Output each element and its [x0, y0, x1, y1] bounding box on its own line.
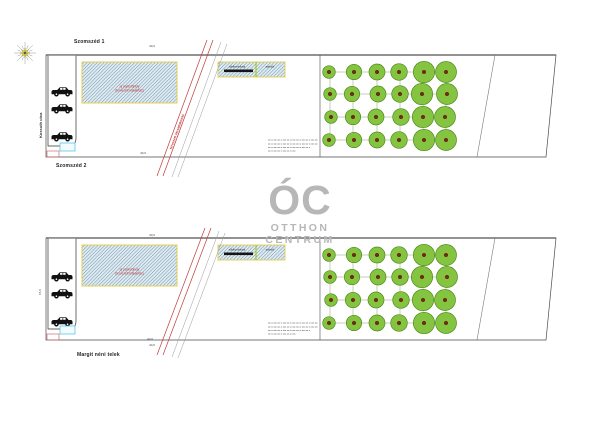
- hatched-strip-black-bar: [224, 253, 253, 256]
- dimension-label: 40,0: [149, 343, 155, 347]
- compass-spoke: [22, 57, 24, 61]
- legend-cyan-box: [60, 326, 75, 334]
- hatched-strip-label-right: parkoló: [266, 248, 275, 252]
- tree-trunk-dot: [374, 115, 378, 119]
- compass-spoke: [27, 57, 29, 61]
- tree-trunk-dot: [327, 70, 331, 74]
- tree-trunk-dot: [422, 70, 426, 74]
- hatched-strip-label-right: parkoló: [266, 65, 275, 69]
- watermark-logo: ÓC OTTHON CENTRUM: [240, 179, 360, 246]
- dimension-label: 40,0: [149, 44, 155, 48]
- hatched-strip-black-bar: [224, 70, 253, 73]
- tree-trunk-dot: [398, 92, 402, 96]
- tree-trunk-dot: [399, 298, 403, 302]
- tree-trunk-dot: [327, 138, 331, 142]
- tree-trunk-dot: [444, 321, 448, 325]
- tree-trunk-dot: [444, 138, 448, 142]
- label-site-caption: Margit néni telek: [77, 352, 120, 358]
- tree-trunk-dot: [376, 275, 380, 279]
- legend-cyan-box: [60, 143, 75, 151]
- tree-trunk-dot: [376, 92, 380, 96]
- tree-trunk-dot: [327, 321, 331, 325]
- hatched-parking-area: [82, 245, 177, 286]
- compass-center-dot: [24, 52, 26, 54]
- tree-trunk-dot: [422, 138, 426, 142]
- compass-spoke: [29, 50, 33, 52]
- tree-trunk-dot: [422, 321, 426, 325]
- tree-trunk-dot: [445, 275, 449, 279]
- compass-spoke: [18, 50, 22, 52]
- tree-trunk-dot: [421, 115, 425, 119]
- hatched-parking-area: [82, 62, 177, 103]
- compass-rose-icon: [12, 40, 38, 66]
- tree-trunk-dot: [351, 115, 355, 119]
- dimension-label: 40,0: [140, 151, 146, 155]
- tree-trunk-dot: [444, 70, 448, 74]
- compass-spoke: [18, 55, 22, 57]
- tree-trunk-dot: [443, 115, 447, 119]
- tree-trunk-dot: [398, 275, 402, 279]
- compass-spoke: [27, 46, 29, 50]
- watermark-line1: OTTHON: [240, 222, 360, 234]
- dimension-label: 40,0: [147, 337, 153, 341]
- tree-trunk-dot: [375, 253, 379, 257]
- tree-trunk-dot: [444, 253, 448, 257]
- compass-spoke: [29, 55, 33, 57]
- tree-trunk-dot: [399, 115, 403, 119]
- tree-trunk-dot: [328, 275, 332, 279]
- tree-trunk-dot: [352, 253, 356, 257]
- dimension-label-vertical: 15,0: [38, 289, 42, 295]
- tree-trunk-dot: [327, 253, 331, 257]
- tree-trunk-dot: [375, 321, 379, 325]
- tree-trunk-dot: [375, 70, 379, 74]
- label-street-vertical: Kossuth utca: [38, 113, 43, 138]
- watermark-line2: CENTRUM: [240, 234, 360, 246]
- tree-trunk-dot: [351, 298, 355, 302]
- tree-trunk-dot: [352, 70, 356, 74]
- tree-trunk-dot: [397, 321, 401, 325]
- dimension-label: 40,0: [149, 233, 155, 237]
- tree-trunk-dot: [397, 253, 401, 257]
- hatched-area-label-2: (tervezett kialakítás): [115, 89, 144, 93]
- tree-trunk-dot: [375, 138, 379, 142]
- tree-trunk-dot: [329, 298, 333, 302]
- tree-trunk-dot: [350, 275, 354, 279]
- tree-trunk-dot: [422, 253, 426, 257]
- tree-trunk-dot: [328, 92, 332, 96]
- tree-trunk-dot: [352, 138, 356, 142]
- tree-trunk-dot: [397, 70, 401, 74]
- tree-trunk-dot: [397, 138, 401, 142]
- tree-trunk-dot: [445, 92, 449, 96]
- tree-trunk-dot: [352, 321, 356, 325]
- tree-trunk-dot: [374, 298, 378, 302]
- parking-strip: [48, 239, 76, 329]
- tree-trunk-dot: [329, 115, 333, 119]
- watermark-monogram: ÓC: [240, 179, 360, 222]
- tree-trunk-dot: [421, 298, 425, 302]
- hatched-strip-label-left: zöldhomlokzat: [229, 65, 246, 69]
- tree-trunk-dot: [350, 92, 354, 96]
- tree-trunk-dot: [420, 92, 424, 96]
- tree-trunk-dot: [420, 275, 424, 279]
- hatched-area-label-2: (tervezett kialakítás): [115, 272, 144, 276]
- compass-spoke: [22, 46, 24, 50]
- label-neighbor-1: Szomszéd 1: [74, 39, 105, 45]
- hatched-strip-label-left: zöldhomlokzat: [229, 248, 246, 252]
- tree-trunk-dot: [443, 298, 447, 302]
- label-neighbor-2: Szomszéd 2: [56, 163, 87, 169]
- site-plan-top: új parkolóhely(tervezett kialakítás)zöld…: [0, 38, 600, 180]
